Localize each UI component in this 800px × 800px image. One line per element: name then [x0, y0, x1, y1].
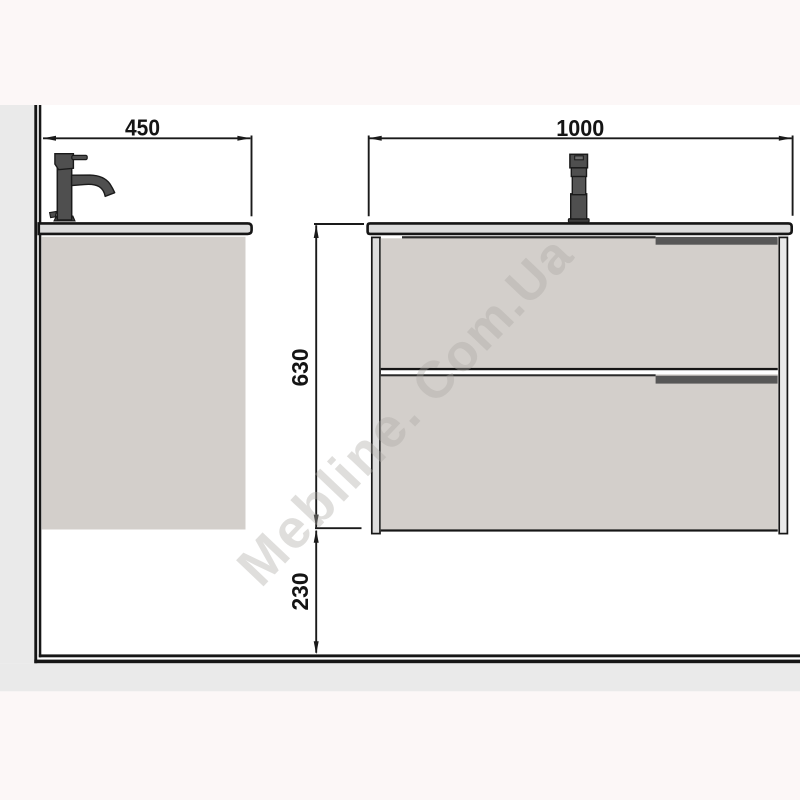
svg-text:230: 230: [287, 573, 313, 611]
svg-text:450: 450: [125, 115, 160, 141]
svg-text:630: 630: [287, 349, 313, 387]
svg-text:1000: 1000: [556, 115, 604, 141]
